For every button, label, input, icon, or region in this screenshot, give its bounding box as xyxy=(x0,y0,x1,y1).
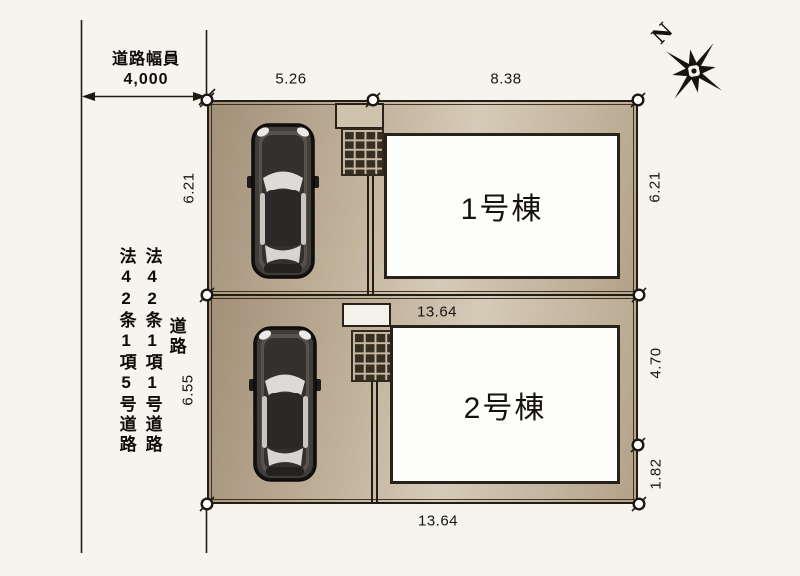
dimension-top-right: 8.38 xyxy=(490,71,521,88)
road-width-caption: 道路幅員 xyxy=(112,45,180,69)
road-width-arrow-icon xyxy=(82,89,215,105)
dimension-bottom-width: 13.64 xyxy=(418,513,458,530)
dimension-lot1-right: 6.21 xyxy=(647,171,664,202)
lot1-entrance-porch xyxy=(335,103,384,129)
road-width-value: 4,000 xyxy=(123,71,168,89)
dimension-lot1-left: 6.21 xyxy=(181,172,198,203)
building-1: 1号棟 xyxy=(384,133,620,279)
compass-rose-icon xyxy=(666,43,722,99)
lot1-entrance-tiles xyxy=(341,128,384,176)
lot2-boundary-line xyxy=(371,381,378,503)
lot2-entrance-porch xyxy=(342,303,391,327)
building-1-label: 1号棟 xyxy=(461,184,544,228)
dimension-lot2-right-upper: 4.70 xyxy=(648,347,665,378)
building-2-label: 2号棟 xyxy=(464,383,547,427)
building-2: 2号棟 xyxy=(390,325,620,484)
road-vertical-label: 道路 xyxy=(165,317,186,357)
dimension-lot2-width-top: 13.64 xyxy=(417,304,457,321)
lot2-entrance-tiles xyxy=(351,330,394,382)
dimension-lot2-right-lower: 1.82 xyxy=(648,458,665,489)
lot1-boundary-line xyxy=(367,176,374,295)
road-law-note-col1: 法42条1項5号道路 xyxy=(115,247,136,455)
dimension-top-left: 5.26 xyxy=(275,71,306,88)
site-plan: 1号棟 2号棟 xyxy=(0,0,800,576)
road-law-note-col2: 法42条1項1号道路 xyxy=(141,247,162,455)
dimension-lot2-left: 6.55 xyxy=(180,374,197,405)
north-label: N xyxy=(646,17,677,48)
